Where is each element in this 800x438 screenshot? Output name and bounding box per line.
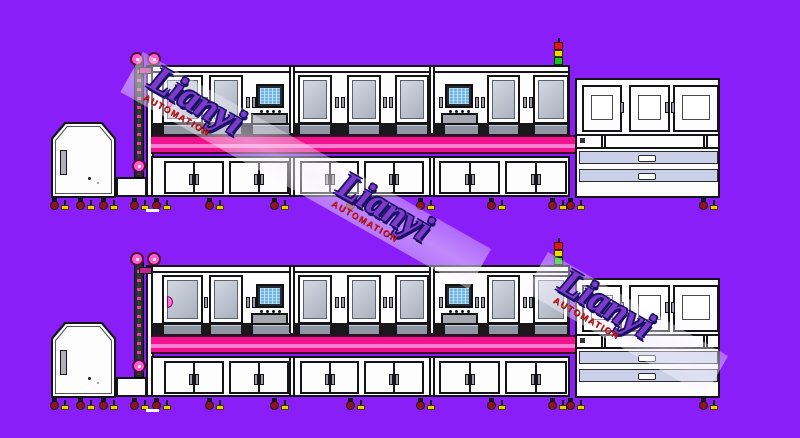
- cabinet-window: [629, 85, 670, 132]
- cabinet-window-glass: [682, 295, 710, 320]
- production-line-bottom: [0, 200, 800, 419]
- cabinet-door-pair: [164, 161, 224, 194]
- rail-divider: [601, 336, 606, 347]
- drawer-handle: [638, 173, 656, 180]
- cabinet-door-pair: [364, 161, 424, 194]
- caster-wheel: [130, 401, 139, 410]
- lower-cabinet: [151, 156, 570, 197]
- hmi-screen-content: [449, 88, 469, 104]
- cabinet-window-glass: [638, 95, 661, 120]
- drawer-handle: [638, 355, 656, 362]
- feeder-knob: [88, 177, 91, 180]
- leveling-foot: [163, 405, 171, 410]
- door-handle: [523, 97, 527, 108]
- door-handle: [341, 297, 345, 308]
- caster: [50, 397, 70, 410]
- production-line-top: [0, 0, 800, 219]
- hmi-panel: [445, 284, 473, 313]
- feeder-machine: [51, 122, 116, 198]
- door-handle: [204, 97, 208, 108]
- rail-divider: [601, 136, 606, 147]
- rail-latch: [580, 338, 585, 343]
- rail-divider: [703, 336, 708, 347]
- hmi-screen-content: [449, 288, 469, 304]
- caster: [205, 397, 225, 410]
- signal-green: [554, 57, 563, 65]
- window-glass: [538, 280, 564, 319]
- signal-yellow: [554, 250, 563, 257]
- door-handle-pair: [246, 297, 256, 308]
- rail-divider: [703, 136, 708, 147]
- leveling-foot: [427, 405, 435, 410]
- hmi-screen-content: [260, 288, 280, 304]
- feeder-machine: [51, 322, 116, 398]
- door-handle-pair: [439, 297, 443, 308]
- door-handle: [331, 374, 335, 385]
- hmi-panel: [256, 284, 284, 313]
- door-handle-pair: [204, 297, 208, 308]
- caster-wheel: [416, 401, 425, 410]
- rail-latch: [580, 138, 585, 143]
- module-boundary-post: [429, 67, 435, 133]
- cabinet-drawer: [579, 169, 718, 182]
- door-handle-pair: [246, 97, 256, 108]
- cabinet-door-pair: [300, 361, 359, 394]
- module-boundary-post: [429, 267, 435, 333]
- cabinet-door-pair: [439, 361, 500, 394]
- strip-window: [300, 125, 330, 134]
- caster-wheel: [548, 401, 557, 410]
- window-glass: [352, 80, 376, 119]
- door-handle-pair: [665, 302, 675, 313]
- hmi-tray: [441, 313, 478, 325]
- module-boundary-post: [429, 158, 435, 195]
- door-handle: [671, 102, 675, 113]
- window-glass: [538, 80, 564, 119]
- leveling-foot: [498, 405, 506, 410]
- leveling-foot: [357, 405, 365, 410]
- door-handle: [395, 174, 399, 185]
- leveling-foot: [281, 405, 289, 410]
- strip-window: [211, 125, 241, 134]
- door-handle: [260, 174, 264, 185]
- cabinet-drawer: [579, 369, 718, 382]
- door-handle: [465, 174, 469, 185]
- enclosure-top-rail: [153, 71, 568, 73]
- door-handle: [523, 297, 527, 308]
- caster: [566, 397, 586, 410]
- hmi-panel: [256, 84, 284, 113]
- door-handle-pair: [523, 97, 533, 108]
- enclosure-window: [395, 75, 429, 124]
- door-handle: [260, 374, 264, 385]
- door-handle: [195, 374, 199, 385]
- caster: [99, 397, 119, 410]
- door-handle-pair: [475, 297, 485, 308]
- feeder-slot-window: [60, 150, 67, 175]
- elevator-pulley-top-right: [147, 252, 161, 266]
- strip-window: [445, 125, 478, 134]
- door-handle: [341, 97, 345, 108]
- strip-window: [211, 325, 241, 334]
- door-handle: [471, 374, 475, 385]
- door-handle: [620, 302, 624, 313]
- cabinet-door-pair: [505, 361, 567, 394]
- cabinet-window-glass: [638, 295, 661, 320]
- strip-window: [164, 325, 201, 334]
- caster: [416, 397, 436, 410]
- window-glass: [400, 80, 424, 119]
- caster-wheel: [76, 401, 85, 410]
- caster: [346, 397, 366, 410]
- door-handle: [189, 174, 193, 185]
- door-handle: [671, 302, 675, 313]
- cad-machine-layout-drawing: Lianyi AUTOMATION Lianyi AUTOMATION Lian…: [0, 0, 800, 438]
- elevator-pulley-top-left: [130, 52, 144, 66]
- door-handle: [475, 297, 479, 308]
- cabinet-window: [629, 285, 670, 332]
- elevator-pulley-top-right: [147, 52, 161, 66]
- strip-window: [397, 125, 427, 134]
- door-handle: [383, 297, 387, 308]
- enclosure-window: [533, 275, 569, 324]
- enclosure-window: [533, 75, 569, 124]
- hmi-screen: [445, 284, 473, 308]
- door-handle: [665, 302, 669, 313]
- enclosure-window: [347, 275, 381, 324]
- enclosure-window: [209, 75, 243, 124]
- caster-wheel: [50, 401, 59, 410]
- cabinet-mid-rail: [577, 334, 718, 349]
- window-glass: [303, 80, 327, 119]
- enclosure-window: [487, 275, 520, 324]
- caster-wheel: [699, 401, 708, 410]
- cabinet-window: [582, 285, 622, 332]
- door-handle-pair: [204, 97, 208, 108]
- module-boundary-post: [289, 67, 295, 133]
- door-handle-pair: [475, 97, 485, 108]
- door-handle: [481, 97, 485, 108]
- process-enclosure: [151, 65, 570, 135]
- cabinet-door-pair: [439, 161, 500, 194]
- feeder-knob: [88, 377, 91, 380]
- cabinet-window: [673, 85, 719, 132]
- hmi-tray: [251, 313, 288, 325]
- cabinet-drawer: [579, 151, 718, 164]
- door-handle: [246, 97, 250, 108]
- door-handle-pair: [383, 97, 393, 108]
- leveling-foot: [710, 405, 718, 410]
- door-handle: [531, 174, 535, 185]
- door-handle-pair: [665, 102, 675, 113]
- door-handle: [665, 102, 669, 113]
- lower-cabinet: [151, 356, 570, 397]
- cabinet-door-pair: [364, 361, 424, 394]
- caster-wheel: [270, 401, 279, 410]
- caster-wheel: [487, 401, 496, 410]
- cabinet-door-pair: [229, 161, 289, 194]
- door-handle: [335, 97, 339, 108]
- caster: [487, 397, 507, 410]
- enclosure-window: [298, 75, 332, 124]
- window-glass: [214, 280, 238, 319]
- door-handle: [189, 374, 193, 385]
- feeder-slot-window: [60, 350, 67, 375]
- window-glass: [400, 280, 424, 319]
- strip-window: [164, 125, 201, 134]
- door-handle: [389, 297, 393, 308]
- door-handle-pair: [335, 97, 345, 108]
- caster: [270, 397, 290, 410]
- signal-green: [554, 257, 563, 265]
- leveling-foot: [577, 405, 585, 410]
- strip-window: [300, 325, 330, 334]
- signal-tower: [554, 238, 564, 267]
- caster: [699, 397, 719, 410]
- strip-window: [535, 125, 567, 134]
- caster-wheel: [346, 401, 355, 410]
- transfer-table: [116, 377, 147, 397]
- module-boundary-post: [429, 358, 435, 395]
- caster: [76, 397, 96, 410]
- signal-tower: [554, 38, 564, 67]
- caster-wheel: [205, 401, 214, 410]
- strip-window: [253, 325, 290, 334]
- door-handle-pair: [620, 302, 624, 313]
- door-handle: [395, 374, 399, 385]
- leveling-foot: [110, 405, 118, 410]
- cabinet-door-pair: [505, 161, 567, 194]
- strip-window: [535, 325, 567, 334]
- door-handle-pair: [335, 297, 345, 308]
- door-handle: [254, 374, 258, 385]
- enclosure-window: [298, 275, 332, 324]
- door-handle: [325, 374, 329, 385]
- elevator-pulley-bottom: [132, 159, 146, 173]
- strip-window: [489, 125, 518, 134]
- door-handle: [389, 174, 393, 185]
- signal-red: [554, 42, 563, 50]
- conveyor-band: [151, 135, 575, 154]
- door-handle: [471, 174, 475, 185]
- door-handle: [204, 297, 208, 308]
- cabinet-mid-rail: [577, 134, 718, 149]
- window-glass: [214, 80, 238, 119]
- enclosure-window: [487, 75, 520, 124]
- door-handle: [195, 174, 199, 185]
- strip-window: [253, 125, 290, 134]
- cabinet-drawer: [579, 351, 718, 364]
- door-handle: [325, 174, 329, 185]
- scale-dash: [146, 409, 159, 412]
- door-handle: [383, 97, 387, 108]
- output-cabinet: [575, 78, 720, 198]
- feeder-mark: [97, 382, 99, 384]
- door-handle: [335, 297, 339, 308]
- window-glass: [352, 280, 376, 319]
- hmi-tray: [251, 113, 288, 125]
- caster: [548, 397, 568, 410]
- elevator-belt: [137, 261, 141, 375]
- feeder-mark: [97, 182, 99, 184]
- leveling-foot: [87, 405, 95, 410]
- strip-window: [397, 325, 427, 334]
- door-handle: [465, 374, 469, 385]
- door-handle: [481, 297, 485, 308]
- door-handle: [246, 297, 250, 308]
- cabinet-door-pair: [164, 361, 224, 394]
- strip-window: [445, 325, 478, 334]
- strip-window: [489, 325, 518, 334]
- strip-window: [349, 125, 379, 134]
- enclosure-window: [347, 75, 381, 124]
- door-handle: [389, 97, 393, 108]
- output-cabinet: [575, 278, 720, 398]
- cabinet-door-pair: [300, 161, 359, 194]
- door-handle: [389, 374, 393, 385]
- conveyor-band: [151, 335, 575, 354]
- hmi-screen: [256, 84, 284, 108]
- module-boundary-post: [289, 267, 295, 333]
- door-handle-pair: [620, 102, 624, 113]
- cabinet-window: [582, 85, 622, 132]
- hmi-screen: [445, 84, 473, 108]
- leveling-foot: [216, 405, 224, 410]
- cabinet-door-pair: [229, 361, 289, 394]
- door-handle: [475, 97, 479, 108]
- elevator-pulley-top-left: [130, 252, 144, 266]
- window-glass: [492, 80, 515, 119]
- hmi-screen: [256, 284, 284, 308]
- enclosure-window: [162, 75, 203, 124]
- door-handle: [537, 374, 541, 385]
- module-boundary-post: [289, 158, 295, 195]
- door-handle: [439, 297, 443, 308]
- elevator-pulley-bottom: [132, 359, 146, 373]
- caster-wheel: [99, 401, 108, 410]
- window-glass: [303, 280, 327, 319]
- enclosure-top-rail: [153, 271, 568, 273]
- window-glass: [492, 280, 515, 319]
- door-handle: [531, 374, 535, 385]
- hmi-tray: [441, 113, 478, 125]
- door-handle: [537, 174, 541, 185]
- cabinet-window: [673, 285, 719, 332]
- module-boundary-post: [289, 358, 295, 395]
- cabinet-window-glass: [682, 95, 710, 120]
- cabinet-window-glass: [591, 95, 613, 120]
- cabinet-window-glass: [591, 295, 613, 320]
- signal-yellow: [554, 50, 563, 57]
- drawer-handle: [638, 373, 656, 380]
- door-handle: [439, 97, 443, 108]
- signal-red: [554, 242, 563, 250]
- strip-window: [349, 325, 379, 334]
- door-handle: [620, 102, 624, 113]
- transfer-table: [116, 177, 147, 197]
- enclosure-window: [162, 275, 203, 324]
- elevator-belt: [137, 61, 141, 175]
- enclosure-window: [209, 275, 243, 324]
- door-handle-pair: [383, 297, 393, 308]
- drawer-handle: [638, 155, 656, 162]
- hmi-screen-content: [260, 88, 280, 104]
- door-handle-pair: [439, 97, 443, 108]
- hmi-panel: [445, 84, 473, 113]
- door-handle: [331, 174, 335, 185]
- door-handle: [254, 174, 258, 185]
- process-enclosure: [151, 265, 570, 335]
- enclosure-window: [395, 275, 429, 324]
- caster-wheel: [566, 401, 575, 410]
- leveling-foot: [61, 405, 69, 410]
- door-handle-pair: [523, 297, 533, 308]
